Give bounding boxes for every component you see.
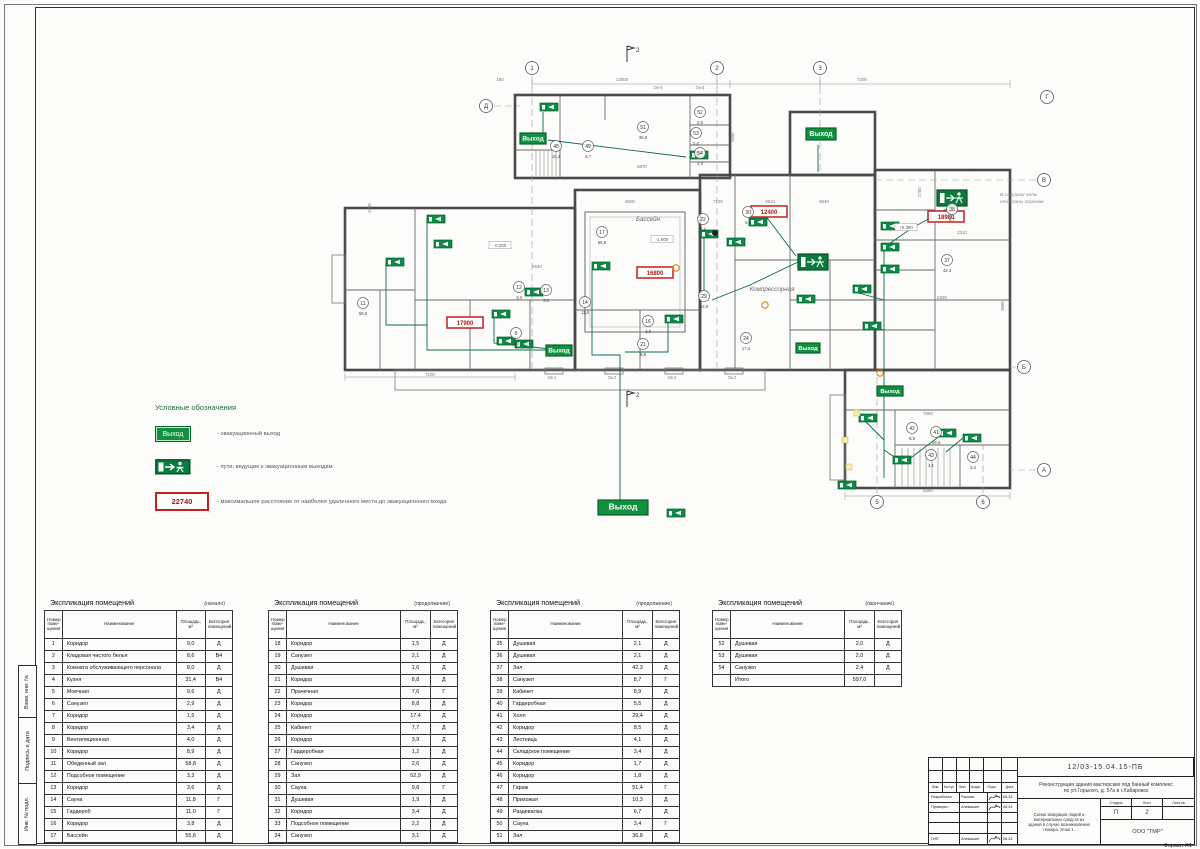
cell-room-category: Д	[652, 699, 679, 711]
table-subtitle: (продолжение)	[414, 601, 450, 607]
signature-header-cell: №док.	[969, 782, 983, 792]
legend-item: 22740 - максимальное расстояние от наибо…	[155, 492, 485, 511]
cell-room-name: Гардеробная	[286, 747, 400, 759]
cell-room-category: Д	[430, 819, 457, 831]
cell-room-name: Подсобное помещение	[286, 819, 400, 831]
cell-room-name: Коридор	[62, 819, 176, 831]
cell-room-number: 47	[491, 783, 509, 795]
cell-room-name: Коридор	[286, 675, 400, 687]
cell-room-category: Д	[205, 663, 232, 675]
rect	[667, 317, 670, 322]
room-number-bubble: 163,8	[643, 316, 654, 335]
column-header: Наименование	[286, 611, 400, 639]
table-row: 12Подсобное помещение3,3Д	[45, 771, 233, 783]
cell-room-category: Д	[205, 723, 232, 735]
cell-room-name: Душевая	[508, 639, 622, 651]
room-number-bubble: 123,3	[514, 282, 525, 301]
room-number: 42	[909, 426, 915, 432]
cell-room-number: 41	[491, 711, 509, 723]
cell-room-number: 22	[269, 687, 287, 699]
table-header-row: Номер поме- щенияНаименованиеПлощадь, м²…	[491, 611, 680, 639]
table-row: 44Складское помещение3,4Д	[491, 747, 680, 759]
rect	[883, 245, 886, 250]
cell-room-area: 31,4	[176, 675, 205, 687]
cell-room-name: Гараж	[508, 783, 622, 795]
column-header: Номер поме- щения	[45, 611, 63, 639]
elevation-mark: -0.200	[489, 242, 511, 249]
dimension-label: 3810	[765, 199, 775, 204]
table-row: 54Санузел2,4Д	[713, 663, 902, 675]
cell-room-area: 1,8	[623, 771, 652, 783]
cell-room-name: Коридор	[286, 699, 400, 711]
cell-room-category: Д	[874, 639, 901, 651]
cell-room-category: Д	[205, 639, 232, 651]
cell-room-number: 29	[269, 771, 287, 783]
table-row: 29Зал52,9Д	[269, 771, 458, 783]
table-title-row: Экспликация помещений(окончание)	[712, 598, 902, 610]
rect	[751, 220, 754, 225]
cell-room-number: 34	[269, 831, 287, 843]
column-header: Площадь, м²	[623, 611, 652, 639]
cell-room-area: 1,5	[401, 639, 430, 651]
cell-room-number: 53	[713, 651, 731, 663]
cell-room-category: Д	[652, 651, 679, 663]
plan-stairs	[536, 150, 950, 486]
cell-room-number: 39	[491, 687, 509, 699]
cell-room-name: Душевая	[730, 639, 844, 651]
cell-room-category: Д	[205, 759, 232, 771]
plan-note: отделаны порогом	[1000, 199, 1044, 205]
cell-room-category: В4	[205, 675, 232, 687]
table-row: 36Душевая2,1Д	[491, 651, 680, 663]
cell-room-number: 54	[713, 663, 731, 675]
signature-table: Изм.Кол.учЛист№док.Подп.ДатаРазработалРы…	[929, 758, 1018, 844]
cell-room-name: Санузел	[508, 675, 622, 687]
table-row: 3Комната обслуживающего персонала8,0Д	[45, 663, 233, 675]
table-row: 8Коридор3,4Д	[45, 723, 233, 735]
room-number: 37	[944, 258, 950, 264]
window-label: Ок-4	[654, 85, 663, 90]
cell-room-number: 1	[45, 639, 63, 651]
room-area: 8,8	[640, 352, 646, 357]
path	[627, 391, 634, 407]
cell-room-category: Г	[652, 675, 679, 687]
tbody: 18Коридор1,5Д19Санузел2,1Д20Душевая1,6Д2…	[269, 639, 458, 843]
grid-bubble-label: Д	[484, 104, 488, 110]
legend-label: - эвакуационный выход	[217, 431, 280, 437]
cell-room-name: Санузел	[62, 699, 176, 711]
side-label-box: Взам. инв. №	[18, 665, 37, 719]
cell-room-category: Д	[652, 639, 679, 651]
route-sign-icon	[155, 459, 191, 475]
distance-box-icon: 22740	[155, 492, 209, 511]
cell-room-category: Д	[652, 723, 679, 735]
cell-room-number: 44	[491, 747, 509, 759]
cell-room-area: 1,6	[401, 663, 430, 675]
table-subtitle: (окончание)	[865, 601, 894, 607]
room-area: 2,0	[693, 141, 699, 146]
route-marker-icon	[386, 258, 404, 266]
room-area: 8,7	[949, 217, 955, 222]
rect	[895, 458, 898, 463]
rect	[542, 105, 545, 110]
stage-label: Стадия	[1109, 800, 1122, 805]
schedule-grid: Номер поме- щенияНаименованиеПлощадь, м²…	[712, 610, 902, 687]
cell-room-name: Коридор	[286, 711, 400, 723]
cell-room-area: 8,8	[401, 675, 430, 687]
cell-room-name: Обеденный зал	[62, 759, 176, 771]
thead: Номер поме- щенияНаименованиеПлощадь, м²…	[45, 611, 233, 639]
exit-sign: Выход	[806, 128, 836, 140]
cell-room-name: Душевая	[508, 651, 622, 663]
rect	[865, 324, 868, 329]
cell-room-name: Зал	[286, 771, 400, 783]
tbody: 52Душевая2,0Д53Душевая2,0Д54Санузел2,4ДИ…	[713, 639, 902, 687]
doc-number: 12/03-15.04.15-ПБ	[1067, 764, 1143, 771]
grid-bubble: А	[1038, 464, 1051, 477]
cell-room-name: Комната обслуживающего персонала	[62, 663, 176, 675]
table-header-row: Номер поме- щенияНаименованиеПлощадь, м²…	[713, 611, 902, 639]
rect	[388, 260, 391, 265]
route-marker-icon	[859, 414, 877, 422]
room-number-bubble: 522,0	[695, 107, 706, 126]
room-number-bubble: 443,4	[968, 452, 979, 471]
room-area: 8,5	[909, 436, 915, 441]
cell-room-number	[713, 675, 731, 687]
cell-room-category: Д	[430, 711, 457, 723]
room-number: 43	[928, 453, 934, 459]
cell-room-number: 51	[491, 831, 509, 843]
room-number: 44	[970, 455, 976, 461]
dimension-label: 7100	[425, 372, 435, 377]
distance-box: 12400	[751, 206, 787, 217]
table-row: 13Коридор3,6Д	[45, 783, 233, 795]
rect	[499, 339, 502, 344]
cell-room-number: 23	[269, 699, 287, 711]
signature-header-cell: Дата	[1001, 782, 1018, 792]
room-schedule-table: Экспликация помещений(начало)Номер поме-…	[44, 598, 233, 843]
table-row: 48Прихожая10,3Д	[491, 795, 680, 807]
cell-room-area: 4,0	[176, 735, 205, 747]
cell-room-number: 11	[45, 759, 63, 771]
room-number: 16	[645, 319, 651, 325]
sheet-label: Лист	[1143, 800, 1151, 805]
cell-room-category: Д	[205, 699, 232, 711]
table-row: 42Коридор8,5Д	[491, 723, 680, 735]
room-number: 49	[585, 144, 591, 150]
cell-room-area: 597,0	[845, 675, 874, 687]
column-header: Наименование	[730, 611, 844, 639]
cell-room-category: Д	[652, 795, 679, 807]
cell-room-name: Коридор	[508, 771, 622, 783]
grid-bubble: Б	[1018, 361, 1031, 374]
cell-room-number: 16	[45, 819, 63, 831]
table-row: 50Сауна3,4Г	[491, 819, 680, 831]
table-row: 49Раздевалка6,7Д	[491, 807, 680, 819]
cell-room-name: Душевая	[286, 795, 400, 807]
dimension-label: 8280	[923, 488, 933, 493]
cell-room-name: Подсобное помещение	[62, 771, 176, 783]
section-number: 2	[636, 48, 640, 54]
cell-room-area: 2,1	[623, 651, 652, 663]
cell-room-area: 8,5	[623, 723, 652, 735]
sheets-label: Листов	[1172, 800, 1185, 805]
route-marker-icon	[749, 218, 767, 226]
path	[627, 46, 634, 62]
column-header: Номер поме- щения	[269, 611, 287, 639]
cell-room-area: 2,1	[401, 651, 430, 663]
cell-room-area: 2,0	[845, 639, 874, 651]
room-area: 7,6	[700, 227, 706, 232]
room-number-bubble: 496,7	[583, 141, 594, 160]
cell-room-number: 27	[269, 747, 287, 759]
plan-note: В санузлах полы	[1000, 192, 1038, 198]
dimension-label: 5870	[637, 164, 647, 169]
cell-room-number: 18	[269, 639, 287, 651]
cell-room-name: Коридор	[62, 783, 176, 795]
side-label: Взам. инв. №	[25, 675, 31, 709]
cell-room-area: 2,0	[845, 651, 874, 663]
table-row: 32Коридор3,4Д	[269, 807, 458, 819]
cell-room-category: Д	[205, 711, 232, 723]
circle	[818, 256, 821, 259]
cell-room-area: 1,5	[176, 711, 205, 723]
cell-room-area: 29,4	[623, 711, 652, 723]
table-row: 4Кухня31,4В4	[45, 675, 233, 687]
signer-name: Алемыкин	[959, 833, 989, 844]
grid-bubble: 1	[526, 62, 539, 75]
legend-item: - пути, ведущие к эвакуационным выходам	[155, 459, 485, 475]
cell-room-category: Д	[205, 735, 232, 747]
room-number: 21	[640, 342, 646, 348]
table-row: 27Гардеробная1,2Д	[269, 747, 458, 759]
table-row: 23Коридор8,8Д	[269, 699, 458, 711]
room-number-bubble: 5136,8	[638, 122, 649, 141]
dimension-label: 7200	[857, 77, 867, 82]
column-header: Площадь, м²	[176, 611, 205, 639]
distance-box: 17900	[447, 317, 483, 328]
cell-room-category: Д	[652, 735, 679, 747]
side-label-box: Подпись и дата	[18, 717, 37, 785]
signature-squiggle	[987, 833, 1001, 844]
rect	[861, 416, 864, 421]
table-row: 46Коридор1,8Д	[491, 771, 680, 783]
dimension-label: 13000	[616, 77, 629, 82]
room-number-bubble: 2952,9	[699, 291, 710, 310]
room-area: 11,8	[581, 310, 590, 315]
cell-room-area: 3,4	[623, 747, 652, 759]
table-row: 7Коридор1,5Д	[45, 711, 233, 723]
drawing-sheet: Взам. инв. № Подпись и дата Инв. № подл.	[0, 0, 1200, 849]
rect	[940, 193, 945, 203]
section-mark: 2	[627, 46, 640, 62]
room-number: 13	[543, 288, 549, 294]
table-row: 21Коридор8,8Д	[269, 675, 458, 687]
cell-room-category: Д	[430, 651, 457, 663]
table-row: 25Кабинет7,7Д	[269, 723, 458, 735]
room-number-bubble: 1411,8	[580, 297, 591, 316]
grid-bubble-label: А	[1042, 468, 1046, 474]
room-number: 29	[701, 294, 707, 300]
marker-yellow-icon	[854, 410, 860, 416]
cell-room-area: 1,9	[401, 795, 430, 807]
cell-room-area: 17,4	[401, 711, 430, 723]
table-title: Экспликация помещений	[50, 598, 134, 607]
cell-room-category: Д	[874, 651, 901, 663]
cell-room-category: Д	[430, 759, 457, 771]
route-marker-icon	[863, 322, 881, 330]
room-area: 10,3	[552, 154, 561, 159]
room-number-bubble: 227,6	[698, 214, 709, 233]
table-row: 53Душевая2,0Д	[713, 651, 902, 663]
table-title: Экспликация помещений	[274, 598, 358, 607]
room-area: 36,8	[639, 135, 648, 140]
grid-bubble: Д	[480, 100, 493, 113]
column-header: Номер поме- щения	[491, 611, 509, 639]
marker-orange-icon	[762, 302, 768, 308]
cell-room-category: Г	[430, 783, 457, 795]
cell-room-name: Коридор	[62, 747, 176, 759]
side-label: Инв. № подл.	[25, 797, 31, 831]
room-number: 9	[515, 331, 518, 337]
cell-room-number: 45	[491, 759, 509, 771]
cell-room-name: Моечная	[62, 687, 176, 699]
cell-room-name: Коридор	[508, 723, 622, 735]
rect	[527, 290, 530, 295]
rect	[799, 297, 802, 302]
table-header-row: Номер поме- щенияНаименованиеПлощадь, м²…	[269, 611, 458, 639]
cell-room-number: 24	[269, 711, 287, 723]
room-number: 12	[516, 285, 522, 291]
room-number-bubble: 428,5	[907, 423, 918, 442]
table-title: Экспликация помещений	[718, 598, 802, 607]
column-header: Категория помещений	[874, 611, 901, 639]
schedule-grid: Номер поме- щенияНаименованиеПлощадь, м²…	[490, 610, 680, 843]
cell-room-number: 21	[269, 675, 287, 687]
room-area: 58,8	[359, 311, 368, 316]
room-schedule-table: Экспликация помещений(продолжение)Номер …	[268, 598, 458, 843]
cell-room-category: Д	[430, 795, 457, 807]
cell-room-name: Санузел	[286, 759, 400, 771]
cell-room-area: 3,4	[176, 723, 205, 735]
room-number: 51	[640, 125, 646, 131]
distance-box: 18980	[928, 211, 964, 222]
table-row: 24Коридор17,4Д	[269, 711, 458, 723]
cell-room-number: 35	[491, 639, 509, 651]
table-row: 33Подсобное помещение2,2Д	[269, 819, 458, 831]
table-row: 52Душевая2,0Д	[713, 639, 902, 651]
room-number: 30	[745, 210, 751, 216]
cell-room-number: 2	[45, 651, 63, 663]
room-number-bubble: 1755,6	[597, 227, 608, 246]
cell-room-category: Д	[874, 663, 901, 675]
cell-room-number: 5	[45, 687, 63, 699]
rect	[429, 217, 432, 222]
table-subtitle: (продолжение)	[636, 601, 672, 607]
room-number: 41	[933, 430, 939, 436]
exit-sign-label: Выход	[548, 348, 569, 355]
room-area: 3,3	[516, 295, 522, 300]
table-row: 22Прачечная7,6Г	[269, 687, 458, 699]
grid-bubble-label: В	[1042, 178, 1046, 184]
table-row: 31Душевая1,9Д	[269, 795, 458, 807]
cell-room-name: Итого	[730, 675, 844, 687]
cell-room-area: 6,7	[623, 807, 652, 819]
cell-room-area: 2,6	[401, 759, 430, 771]
signature-header-cell: Лист	[956, 782, 969, 792]
cell-room-name: Зал	[508, 831, 622, 843]
cell-room-number: 50	[491, 819, 509, 831]
signature-date: 06.24	[1001, 802, 1020, 812]
cell-room-number: 7	[45, 711, 63, 723]
table-row: 41Холл29,4Д	[491, 711, 680, 723]
grid-bubble: 6	[977, 496, 990, 509]
table-row: 6Санузел2,9Д	[45, 699, 233, 711]
cell-room-area: 3,1	[401, 831, 430, 843]
column-header: Номер поме- щения	[713, 611, 731, 639]
dimension-label: 2310	[957, 230, 967, 235]
dimension-label: 4540	[532, 264, 542, 269]
cell-room-area: 10,3	[623, 795, 652, 807]
rect	[840, 483, 843, 488]
signer-role: Разработал	[929, 792, 961, 802]
column-header: Категория помещений	[205, 611, 232, 639]
cell-room-area: 5,5	[623, 699, 652, 711]
grid-bubble: Г	[1041, 91, 1054, 104]
cell-room-name: Кабинет	[286, 723, 400, 735]
cell-room-area: 58,8	[176, 759, 205, 771]
signer-role: ГИП	[929, 833, 961, 844]
room-area: 9,8	[745, 220, 751, 225]
dimension-label: 2400	[367, 203, 372, 213]
signature-squiggle	[987, 802, 1001, 812]
cell-room-area: 52,9	[401, 771, 430, 783]
dimension-label: 9580	[1000, 301, 1005, 311]
table-title-row: Экспликация помещений(продолжение)	[490, 598, 680, 610]
cell-room-number: 32	[269, 807, 287, 819]
cell-room-number: 9	[45, 735, 63, 747]
thead: Номер поме- щенияНаименованиеПлощадь, м²…	[713, 611, 902, 639]
circle	[957, 192, 960, 195]
rect	[883, 267, 886, 272]
cell-room-area: 42,3	[623, 663, 652, 675]
room-number-bubble: 4129,4	[931, 427, 942, 446]
cell-room-name: Коридор	[286, 807, 400, 819]
grid-bubble: 5	[871, 496, 884, 509]
cell-room-number: 26	[269, 735, 287, 747]
cell-room-name: Санузел	[730, 663, 844, 675]
room-number: 52	[697, 110, 703, 116]
cell-room-category: Д	[652, 831, 679, 843]
cell-room-category: Д	[652, 759, 679, 771]
cell-room-number: 15	[45, 807, 63, 819]
table-row: 28Санузел2,6Д	[269, 759, 458, 771]
cell-room-number: 10	[45, 747, 63, 759]
cell-room-name: Кладовая чистого белья	[62, 651, 176, 663]
cell-room-name: Душевая	[286, 663, 400, 675]
cell-room-area: 3,3	[176, 771, 205, 783]
route-marker-icon	[797, 295, 815, 303]
signature-header-cell: Кол.уч	[942, 782, 956, 792]
legend-label: - максимальное расстояние от наиболее уд…	[217, 499, 447, 505]
signer-name: Алемыкин	[959, 802, 989, 812]
cell-room-number: 42	[491, 723, 509, 735]
cell-room-category: Г	[430, 687, 457, 699]
legend-title: Условные обозначения	[155, 403, 485, 412]
room-number: 14	[582, 300, 588, 306]
dimension-label: 7050	[923, 411, 933, 416]
cell-room-name: Санузел	[286, 651, 400, 663]
